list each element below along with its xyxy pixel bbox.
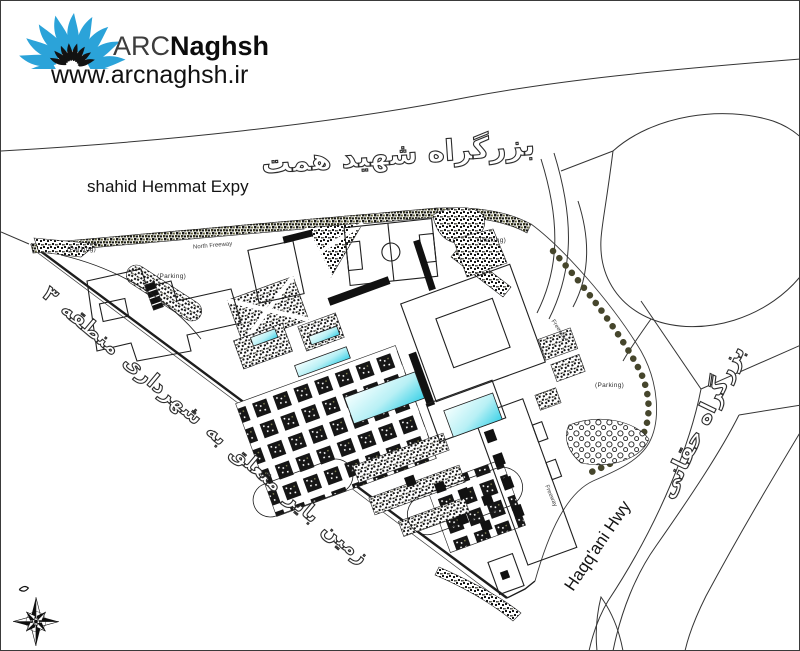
brand-prefix: ARC [113,31,170,61]
brand-suffix: Naghsh [170,31,269,61]
planting-beds [34,208,649,622]
brand-name: ARCNaghsh [113,31,269,62]
parking-label-4: (Parking) [595,382,624,389]
site-plan-drawing [1,1,800,651]
hemmat-expressway-label-en: shahid Hemmat Expy [87,177,249,197]
website-url: www.arcnaghsh.ir [51,61,248,90]
compass-rose-icon [7,585,71,649]
parking-label-1: (Parking) [67,246,96,253]
compass-north-glyph [19,586,28,591]
parking-label-2: (Parking) [157,273,186,280]
parking-label-3: (Parking) [477,237,506,244]
sunburst-logo-icon [17,9,127,69]
site-plan-page: ARCNaghsh www.arcnaghsh.ir بزرگراه شهید … [0,0,800,651]
